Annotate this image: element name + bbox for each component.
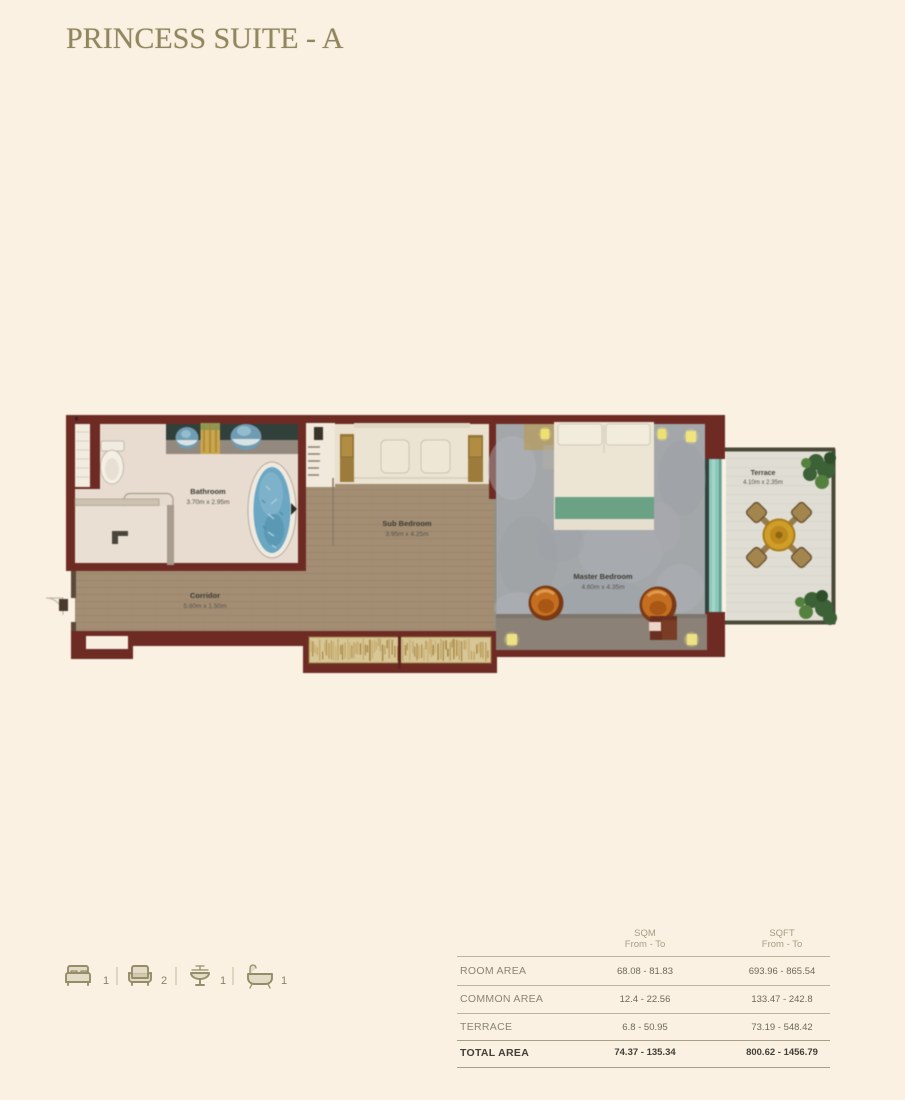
svg-text:1: 1 bbox=[220, 975, 226, 987]
svg-text:4.10m x 2.35m: 4.10m x 2.35m bbox=[743, 480, 783, 486]
svg-text:Terrace: Terrace bbox=[751, 470, 776, 477]
svg-text:4.60m x 4.35m: 4.60m x 4.35m bbox=[582, 584, 625, 591]
svg-text:Master Bedroom: Master Bedroom bbox=[573, 572, 633, 581]
svg-text:2: 2 bbox=[161, 975, 167, 987]
svg-text:1: 1 bbox=[281, 975, 287, 987]
svg-text:1: 1 bbox=[103, 975, 109, 987]
svg-text:Bathroom: Bathroom bbox=[190, 487, 226, 496]
svg-text:5.80m x 1.50m: 5.80m x 1.50m bbox=[184, 603, 227, 610]
svg-text:Sub Bedroom: Sub Bedroom bbox=[382, 519, 431, 528]
svg-text:Corridor: Corridor bbox=[190, 591, 220, 600]
svg-text:3.95m x 4.25m: 3.95m x 4.25m bbox=[386, 531, 429, 538]
svg-text:3.70m x 2.95m: 3.70m x 2.95m bbox=[187, 499, 230, 506]
